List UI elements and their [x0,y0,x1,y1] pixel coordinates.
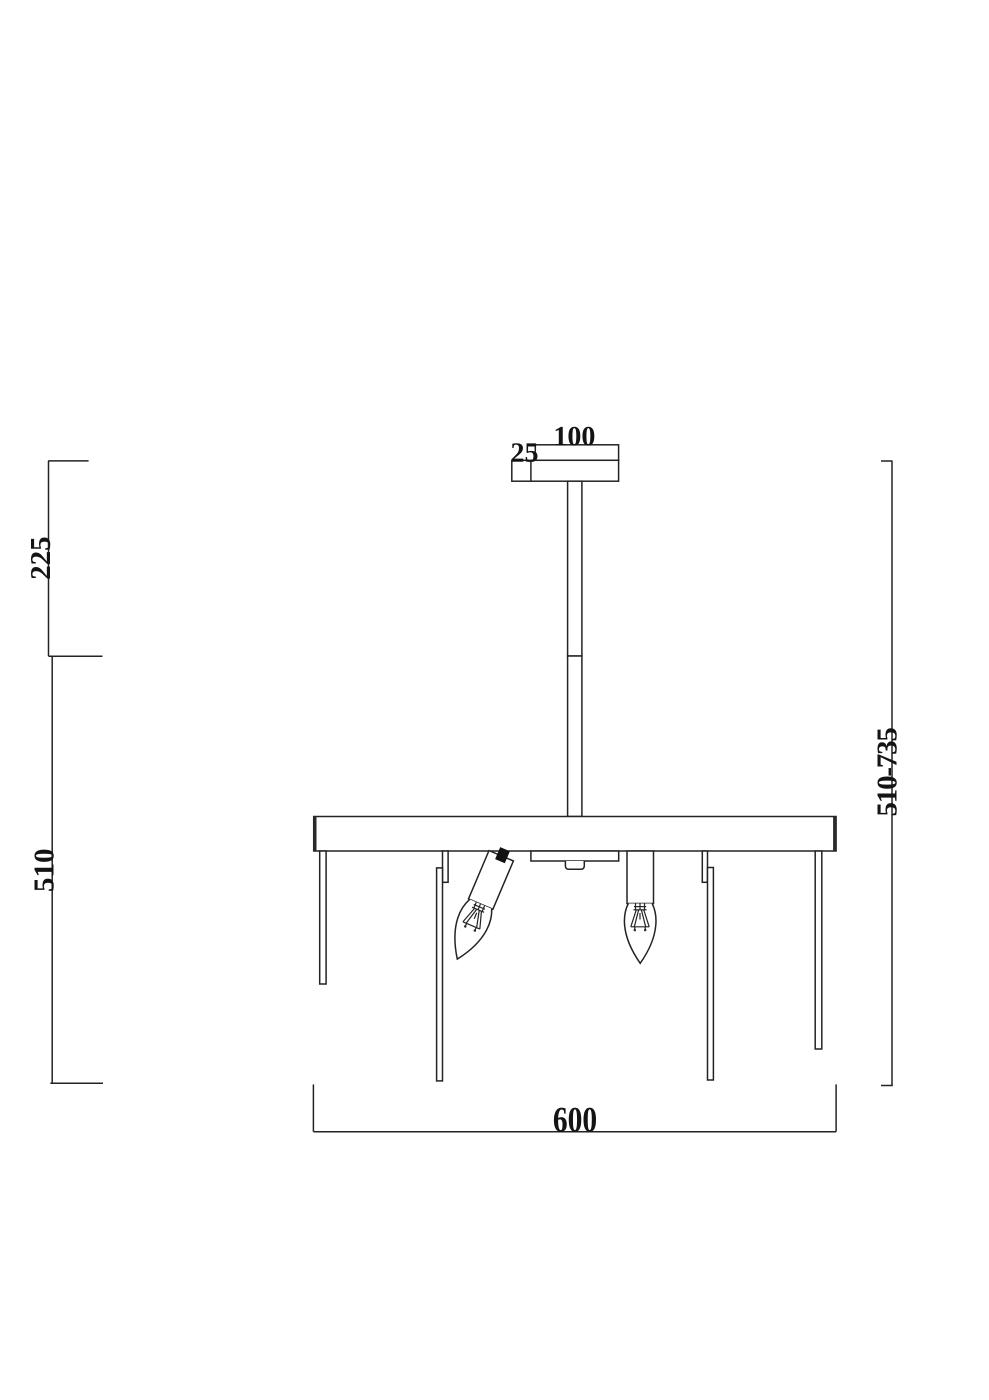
svg-text:600: 600 [553,1101,597,1140]
svg-text:100: 100 [553,421,595,452]
svg-text:25: 25 [510,438,538,469]
svg-text:510-735: 510-735 [871,728,903,817]
svg-text:510: 510 [28,849,60,893]
svg-text:225: 225 [25,536,57,580]
